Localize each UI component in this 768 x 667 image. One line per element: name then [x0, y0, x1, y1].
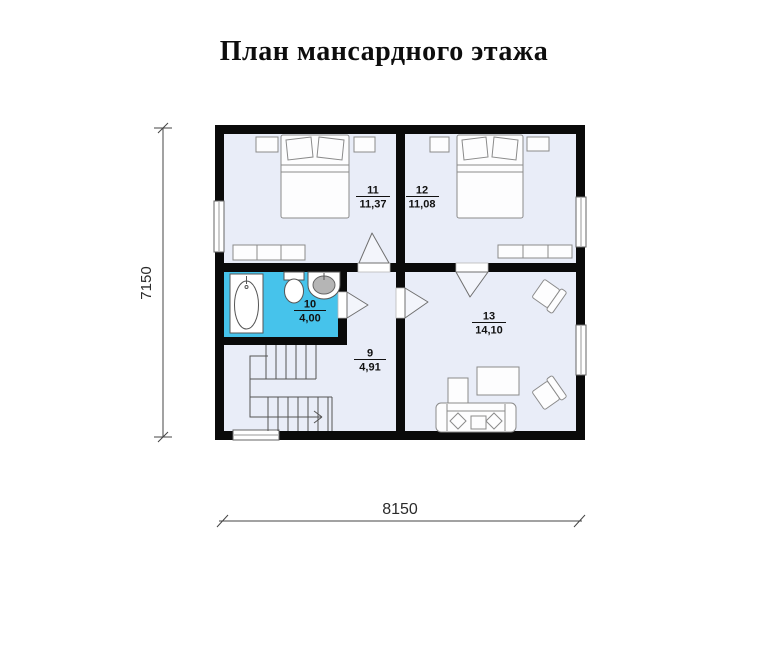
room-9-area: 4,91: [359, 362, 380, 374]
dresser-outline: [498, 245, 572, 258]
door-opening-room12-13: [456, 263, 488, 272]
vertical-dimension-label: 7150: [138, 266, 155, 299]
sink-icon: [308, 272, 340, 299]
nightstand-icon: [256, 137, 278, 152]
door-opening-bathroom: [338, 292, 347, 318]
door-opening-hall-living: [396, 288, 405, 318]
wall-right: [576, 125, 585, 440]
bathtub-icon: [230, 274, 263, 333]
wall-top: [215, 125, 585, 134]
room-12-number: 12: [416, 185, 428, 197]
horizontal-dimension: 8150: [217, 501, 585, 527]
wall-left: [215, 125, 224, 440]
pillow-icon: [286, 137, 313, 160]
desk-icon: [448, 378, 468, 406]
toilet-bowl: [285, 279, 304, 303]
double-bed-icon: [281, 135, 349, 218]
horizontal-dimension-label: 8150: [382, 501, 418, 518]
door-opening-room11: [358, 263, 390, 272]
room-11-area: 11,37: [360, 199, 387, 211]
dresser-icon: [233, 245, 305, 260]
toilet-icon: [284, 272, 304, 303]
double-bed-icon: [457, 135, 523, 218]
wall-middle-horizontal: [224, 263, 576, 272]
room-10-area: 4,00: [299, 313, 320, 325]
pillow-icon: [492, 137, 518, 160]
room-12-area: 11,08: [409, 199, 436, 211]
vertical-dimension: 7150: [138, 123, 172, 442]
room-9-number: 9: [367, 348, 373, 360]
floor-plan-page: План мансардного этажа: [0, 0, 768, 667]
room-11-number: 11: [367, 185, 379, 197]
room-13-number: 13: [483, 311, 495, 323]
nightstand-icon: [354, 137, 375, 152]
pillow-icon: [317, 137, 344, 160]
pillow-icon: [462, 137, 488, 160]
sofa-icon: [436, 403, 516, 432]
sofa-side-table: [471, 416, 486, 429]
wall-bathroom-bottom: [224, 337, 347, 345]
dresser-outline: [233, 245, 305, 260]
bathtub-drain: [245, 286, 248, 289]
coffee-table-icon: [477, 367, 519, 395]
room-10-number: 10: [304, 299, 316, 311]
nightstand-icon: [430, 137, 449, 152]
dresser-icon: [498, 245, 572, 258]
wall-middle-vertical: [396, 134, 405, 431]
floor-plan: 11 11,37 12 11,08 10 4,00 9 4,91 13: [0, 0, 768, 667]
room-13-area: 14,10: [475, 325, 503, 337]
nightstand-icon: [527, 137, 549, 151]
